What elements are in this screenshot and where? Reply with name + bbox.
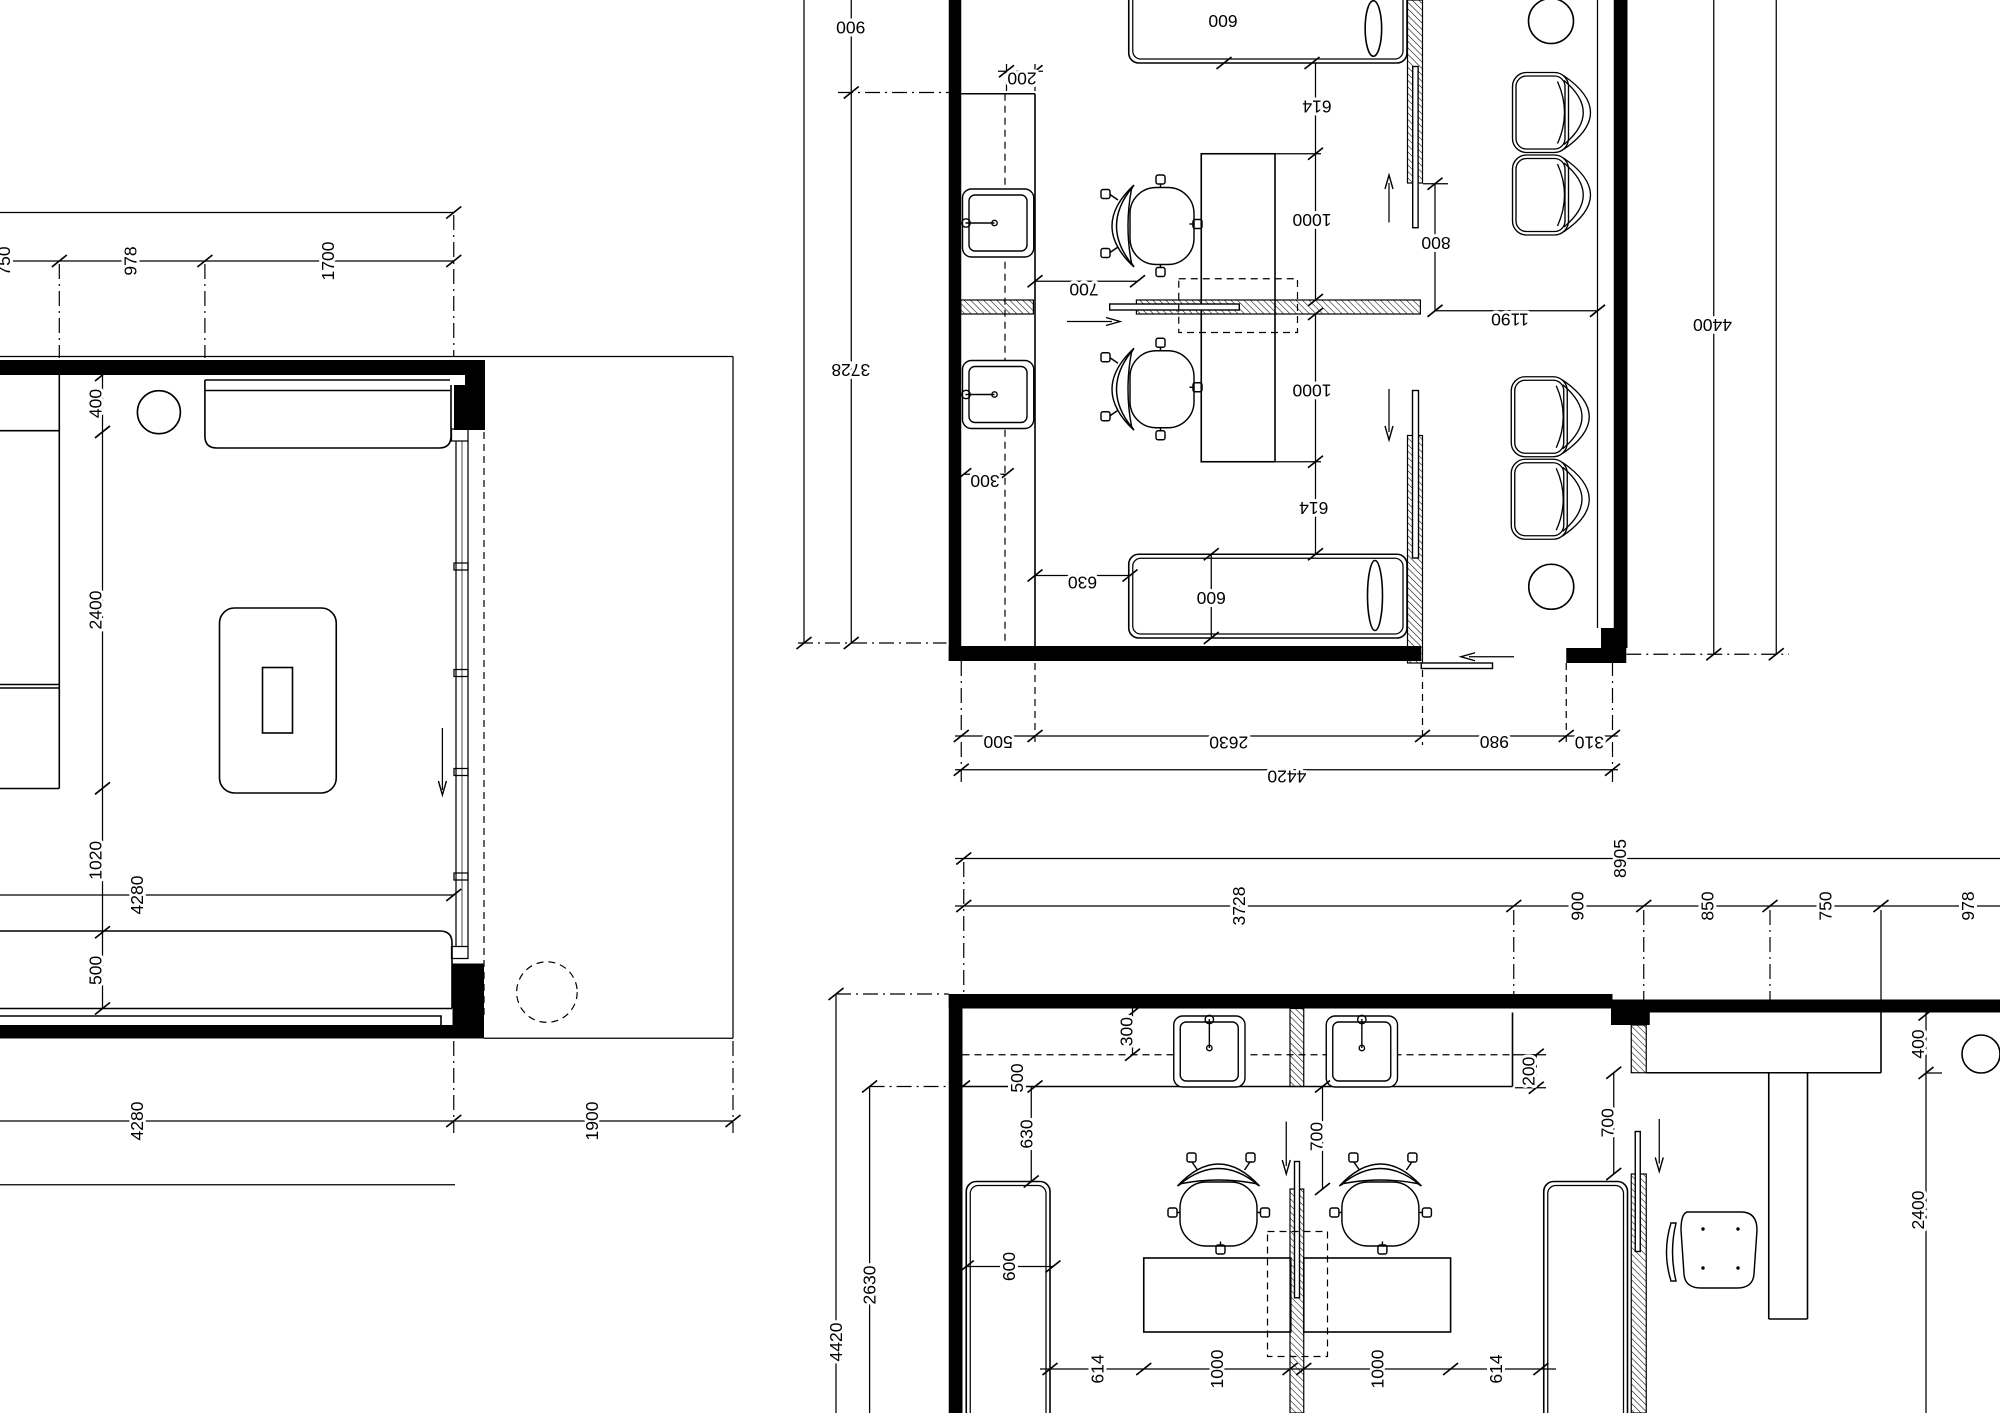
svg-text:4280: 4280 <box>127 875 147 914</box>
svg-text:1000: 1000 <box>1367 1349 1387 1388</box>
svg-text:850: 850 <box>1698 891 1718 920</box>
svg-text:500: 500 <box>1007 1063 1027 1092</box>
svg-text:700: 700 <box>1598 1108 1618 1137</box>
svg-text:200: 200 <box>1519 1056 1539 1085</box>
svg-text:800: 800 <box>1421 233 1450 253</box>
svg-text:614: 614 <box>1299 498 1328 518</box>
svg-text:1000: 1000 <box>1207 1349 1227 1388</box>
svg-text:1700: 1700 <box>318 241 338 280</box>
svg-text:310: 310 <box>1575 732 1604 752</box>
svg-text:1190: 1190 <box>1491 309 1529 329</box>
svg-text:4420: 4420 <box>826 1322 846 1361</box>
svg-text:500: 500 <box>86 956 106 985</box>
svg-text:300: 300 <box>970 471 999 491</box>
svg-text:3728: 3728 <box>1229 887 1249 926</box>
svg-text:400: 400 <box>86 389 106 418</box>
svg-text:630: 630 <box>1068 572 1097 592</box>
svg-text:978: 978 <box>1958 891 1978 920</box>
svg-text:4420: 4420 <box>1267 766 1306 786</box>
svg-text:3728: 3728 <box>831 360 870 380</box>
svg-text:2630: 2630 <box>860 1265 880 1304</box>
svg-text:600: 600 <box>999 1252 1019 1281</box>
svg-text:1020: 1020 <box>86 841 106 880</box>
svg-text:400: 400 <box>1908 1029 1928 1058</box>
svg-text:300: 300 <box>1117 1017 1137 1046</box>
svg-text:500: 500 <box>983 732 1012 752</box>
svg-text:700: 700 <box>1306 1122 1326 1151</box>
svg-text:600: 600 <box>1208 11 1237 31</box>
svg-text:900: 900 <box>836 17 865 37</box>
svg-text:900: 900 <box>1568 891 1588 920</box>
svg-text:700: 700 <box>1069 279 1098 299</box>
svg-text:2400: 2400 <box>86 590 106 629</box>
svg-text:614: 614 <box>1088 1354 1108 1383</box>
svg-text:200: 200 <box>1007 68 1036 88</box>
svg-text:1900: 1900 <box>582 1101 602 1140</box>
svg-text:4400: 4400 <box>1693 315 1732 335</box>
svg-text:2630: 2630 <box>1209 732 1248 752</box>
svg-text:8905: 8905 <box>1610 839 1630 878</box>
svg-text:600: 600 <box>1196 588 1225 608</box>
svg-text:750: 750 <box>0 246 14 275</box>
svg-text:750: 750 <box>1816 891 1836 920</box>
svg-text:1000: 1000 <box>1292 380 1331 400</box>
svg-text:614: 614 <box>1302 96 1331 116</box>
svg-text:978: 978 <box>120 246 140 275</box>
svg-text:4280: 4280 <box>127 1101 147 1140</box>
svg-text:980: 980 <box>1480 732 1509 752</box>
svg-text:614: 614 <box>1486 1354 1506 1383</box>
svg-text:630: 630 <box>1016 1119 1036 1148</box>
svg-text:1000: 1000 <box>1292 210 1331 230</box>
svg-text:2400: 2400 <box>1908 1190 1928 1229</box>
